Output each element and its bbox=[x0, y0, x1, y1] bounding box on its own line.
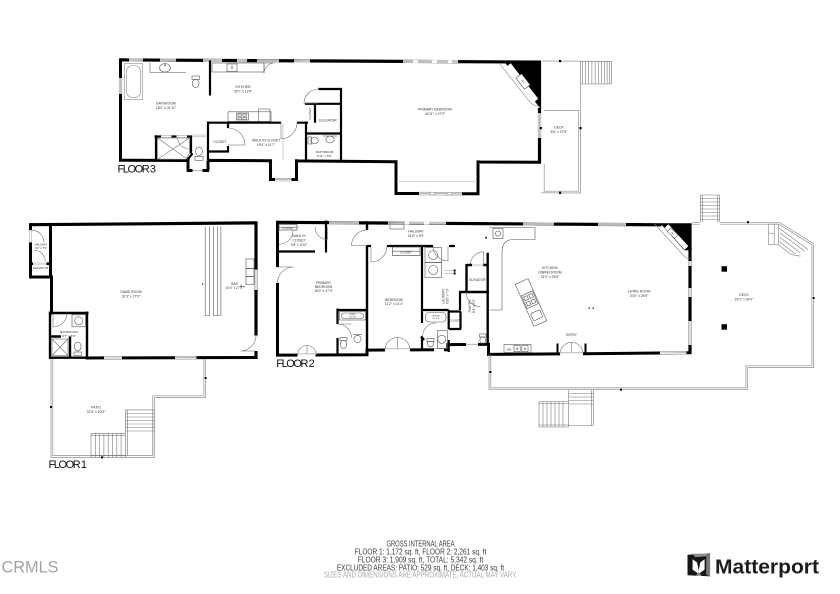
svg-text:ENTRY: ENTRY bbox=[566, 333, 578, 337]
svg-text:CLOSET: CLOSET bbox=[292, 238, 305, 242]
svg-text:DECK: DECK bbox=[739, 293, 749, 297]
svg-text:CLOSET: CLOSET bbox=[213, 140, 227, 144]
svg-text:CLOSET: CLOSET bbox=[449, 319, 461, 323]
svg-text:9'8" x 5'10": 9'8" x 5'10" bbox=[291, 243, 308, 247]
svg-text:DINING ROOM: DINING ROOM bbox=[538, 271, 562, 275]
svg-text:11'2" x 21'4": 11'2" x 21'4" bbox=[385, 302, 404, 306]
svg-text:ELEVATOR: ELEVATOR bbox=[469, 278, 486, 282]
svg-text:6'7" x 8'3": 6'7" x 8'3" bbox=[62, 334, 76, 338]
svg-text:BATHROOM: BATHROOM bbox=[156, 102, 176, 106]
svg-text:8'4" x 27'5": 8'4" x 27'5" bbox=[551, 130, 569, 134]
svg-text:FLOOR 3: FLOOR 3 bbox=[118, 164, 157, 176]
svg-text:OR TUB: OR TUB bbox=[349, 316, 357, 318]
svg-text:PRIMARY BEDROOM: PRIMARY BEDROOM bbox=[418, 108, 452, 112]
svg-text:18'4" x 21'11": 18'4" x 21'11" bbox=[156, 106, 177, 110]
svg-text:8'1" x 9'9": 8'1" x 9'9" bbox=[472, 299, 476, 313]
svg-text:24'8" x 9'9": 24'8" x 9'9" bbox=[408, 234, 426, 238]
svg-text:ELEVATOR: ELEVATOR bbox=[319, 119, 337, 123]
svg-text:HALLWAY: HALLWAY bbox=[408, 230, 424, 234]
svg-text:40'11" x 27'3": 40'11" x 27'3" bbox=[425, 112, 446, 116]
svg-text:OR TUB: OR TUB bbox=[432, 318, 440, 320]
svg-text:32'3" x 20'9": 32'3" x 20'9" bbox=[87, 410, 106, 414]
svg-text:FLOOR 1: FLOOR 1 bbox=[49, 459, 88, 471]
svg-text:CLOSET: CLOSET bbox=[308, 107, 312, 119]
svg-text:WALK IN: WALK IN bbox=[292, 234, 306, 238]
svg-text:DECK: DECK bbox=[554, 126, 564, 130]
svg-text:WALK IN CLOSET: WALK IN CLOSET bbox=[252, 139, 280, 143]
svg-text:31'3" x 27'0": 31'3" x 27'0" bbox=[122, 295, 141, 299]
svg-text:CLOSET: CLOSET bbox=[400, 250, 412, 254]
svg-text:SIZES AND DIMENSIONS ARE APPRO: SIZES AND DIMENSIONS ARE APPROXIMATE, AC… bbox=[324, 569, 518, 579]
svg-text:ELEVATOR: ELEVATOR bbox=[33, 266, 48, 270]
svg-text:6'11" x 5'9": 6'11" x 5'9" bbox=[317, 154, 332, 158]
svg-text:8'10" x 7'9": 8'10" x 7'9" bbox=[446, 288, 450, 304]
svg-text:25'1" x 34'0": 25'1" x 34'0" bbox=[735, 298, 754, 302]
svg-text:26'7" x 12'4": 26'7" x 12'4" bbox=[234, 90, 253, 94]
svg-text:KITCHEN: KITCHEN bbox=[236, 85, 251, 89]
svg-text:CLOSET: CLOSET bbox=[282, 226, 294, 230]
svg-text:FLOOR 2: FLOOR 2 bbox=[276, 358, 315, 370]
svg-text:KITCHEN/: KITCHEN/ bbox=[542, 266, 558, 270]
svg-text:20'0" x 26'9": 20'0" x 26'9" bbox=[630, 294, 649, 298]
svg-text:18'2" x 27'3": 18'2" x 27'3" bbox=[314, 289, 333, 293]
svg-text:PATIO: PATIO bbox=[91, 406, 101, 410]
svg-text:4'2" x 7'9": 4'2" x 7'9" bbox=[35, 246, 47, 250]
svg-text:DW: DW bbox=[507, 347, 512, 351]
svg-text:CRMLS: CRMLS bbox=[2, 558, 59, 577]
svg-text:Matterport: Matterport bbox=[715, 556, 819, 579]
svg-text:LIVING ROOM: LIVING ROOM bbox=[628, 290, 651, 294]
svg-text:21'2" x 26'9": 21'2" x 26'9" bbox=[541, 275, 560, 279]
svg-text:19'4" x 11'7": 19'4" x 11'7" bbox=[257, 143, 276, 147]
svg-text:GAME ROOM: GAME ROOM bbox=[120, 290, 142, 294]
